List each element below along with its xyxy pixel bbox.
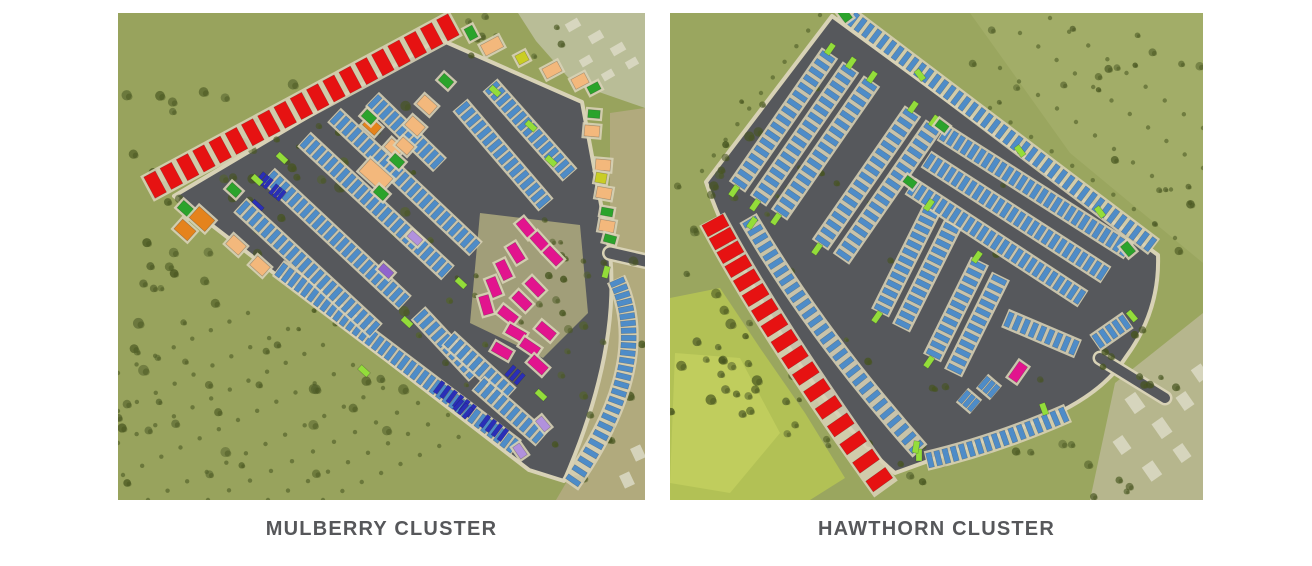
mulberry-cluster-map-svg (118, 13, 645, 500)
mulberry-cluster-caption: MULBERRY CLUSTER (118, 518, 645, 541)
mulberry-cluster-image: MULBERRY CLUSTER (118, 13, 645, 500)
hawthorn-cluster-caption: HAWTHORN CLUSTER (670, 518, 1203, 541)
site-plan-comparison: MULBERRY CLUSTER HAWTHORN CLUSTER (0, 0, 1312, 566)
hawthorn-cluster-image: HAWTHORN CLUSTER (670, 13, 1203, 500)
hawthorn-cluster-map-svg (670, 13, 1203, 500)
